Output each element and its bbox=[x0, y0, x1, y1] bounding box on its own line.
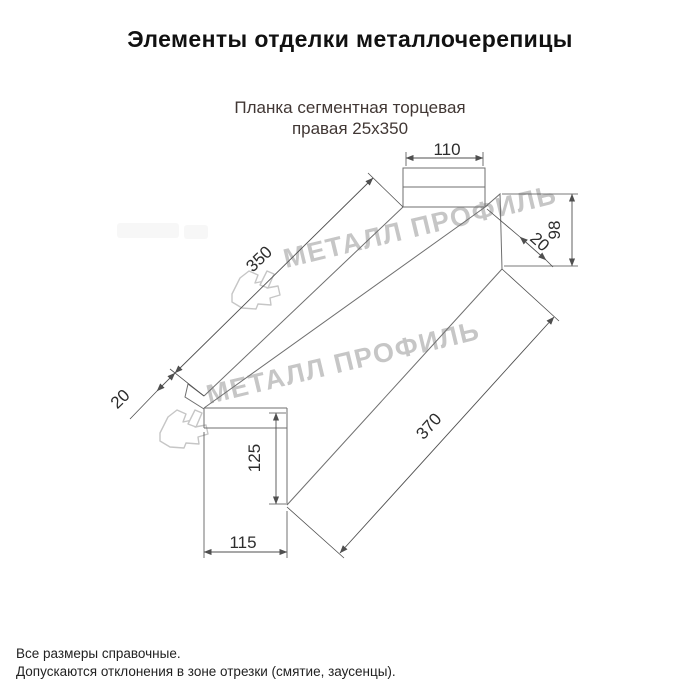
dim-370: 370 bbox=[287, 269, 559, 558]
dim-label-370: 370 bbox=[412, 409, 445, 443]
drawing-page: Элементы отделки металлочерепицы Планка … bbox=[0, 0, 700, 700]
metal-profil-logo-icon bbox=[160, 410, 208, 448]
dim-110: 110 bbox=[406, 140, 483, 166]
footer-notes: Все размеры справочные. Допускаются откл… bbox=[16, 645, 396, 681]
dim-label-20-left: 20 bbox=[107, 386, 134, 413]
dim-20-left: 20 bbox=[107, 373, 175, 419]
watermark-text: МЕТАЛЛ ПРОФИЛЬ bbox=[280, 179, 560, 274]
dim-label-110: 110 bbox=[433, 140, 460, 159]
dim-125: 125 bbox=[245, 413, 286, 504]
dim-label-350: 350 bbox=[242, 242, 276, 275]
technical-drawing: МЕТАЛЛ ПРОФИЛЬ МЕТАЛЛ ПРОФИЛЬ 110 bbox=[0, 0, 700, 700]
left-end-hem bbox=[185, 384, 204, 409]
footer-note-line1: Все размеры справочные. bbox=[16, 645, 396, 663]
dim-label-125: 125 bbox=[245, 444, 264, 472]
bottom-free-edge bbox=[287, 269, 502, 505]
footer-note-line2: Допускаются отклонения в зоне отрезки (с… bbox=[16, 663, 396, 681]
watermark-top: МЕТАЛЛ ПРОФИЛЬ bbox=[232, 179, 560, 309]
watermark-text: МЕТАЛЛ ПРОФИЛЬ bbox=[203, 315, 483, 410]
dim-label-115: 115 bbox=[229, 533, 256, 552]
